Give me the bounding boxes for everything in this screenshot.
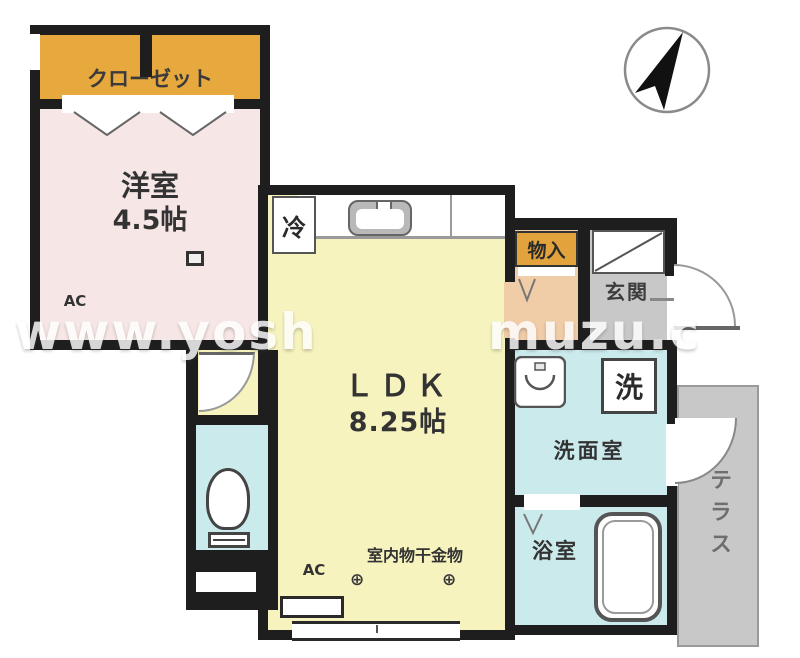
ldk-size: 8.25帖 [318,406,478,440]
floor-plan: クローゼット 洋室 4.5帖 AC 冷 ＬＤＫ 8.25帖 AC 室内物干金物 … [0,0,800,658]
watermark-text-left: www.yosh [15,303,318,361]
closet-divider-wall [140,25,152,77]
ldk-name: ＬＤＫ [318,368,478,406]
ac-panel-window [280,596,344,618]
terrace-label: テラス [702,468,734,564]
watermark-text-right: muzu.c [488,303,701,361]
ldk-terrace-window [292,621,460,641]
bathroom-door-icon [522,512,544,536]
washroom-label: 洗面室 [512,438,667,464]
storage-door-icon [517,277,537,303]
storage-door-track [518,267,575,276]
toilet-base [208,532,250,548]
toilet-window [196,572,256,592]
western-room-label: 洋室 4.5帖 [70,168,230,238]
ldk-ac-label: AC [294,561,334,580]
storage-box: 物入 [515,231,578,267]
western-room-name: 洋室 [70,168,230,204]
entrance-label: 玄関 [594,280,660,305]
washbasin-icon [514,356,566,408]
refrigerator-label: 冷 [282,208,306,243]
compass-icon [620,18,715,118]
kitchen-counter-divider [450,195,452,239]
drying-hook-icon: ⊕ [442,570,456,590]
western-room-size: 4.5帖 [70,204,230,238]
drying-hardware-label: 室内物干金物 [330,546,500,566]
window-center-mark [376,625,378,633]
bathroom-label: 浴室 [512,538,598,564]
ldk-label: ＬＤＫ 8.25帖 [318,368,478,439]
toilet-right-wall [268,350,278,425]
bathtub-icon [594,512,662,622]
washer-box: 洗 [601,358,657,414]
folding-door-icon [158,110,228,138]
kitchen-sink-icon [348,200,412,236]
shoe-cabinet-icon [592,230,665,274]
refrigerator-box: 冷 [272,196,316,254]
entrance-top-wall [505,218,677,230]
washer-label: 洗 [615,366,643,406]
closet-side-window [28,34,40,70]
toilet-icon [206,468,250,530]
folding-door-icon [72,110,142,138]
drying-hook-icon: ⊕ [350,570,364,590]
storage-label: 物入 [527,236,565,263]
bathroom-door-track [524,494,580,510]
wall-fixture-box [186,251,204,266]
